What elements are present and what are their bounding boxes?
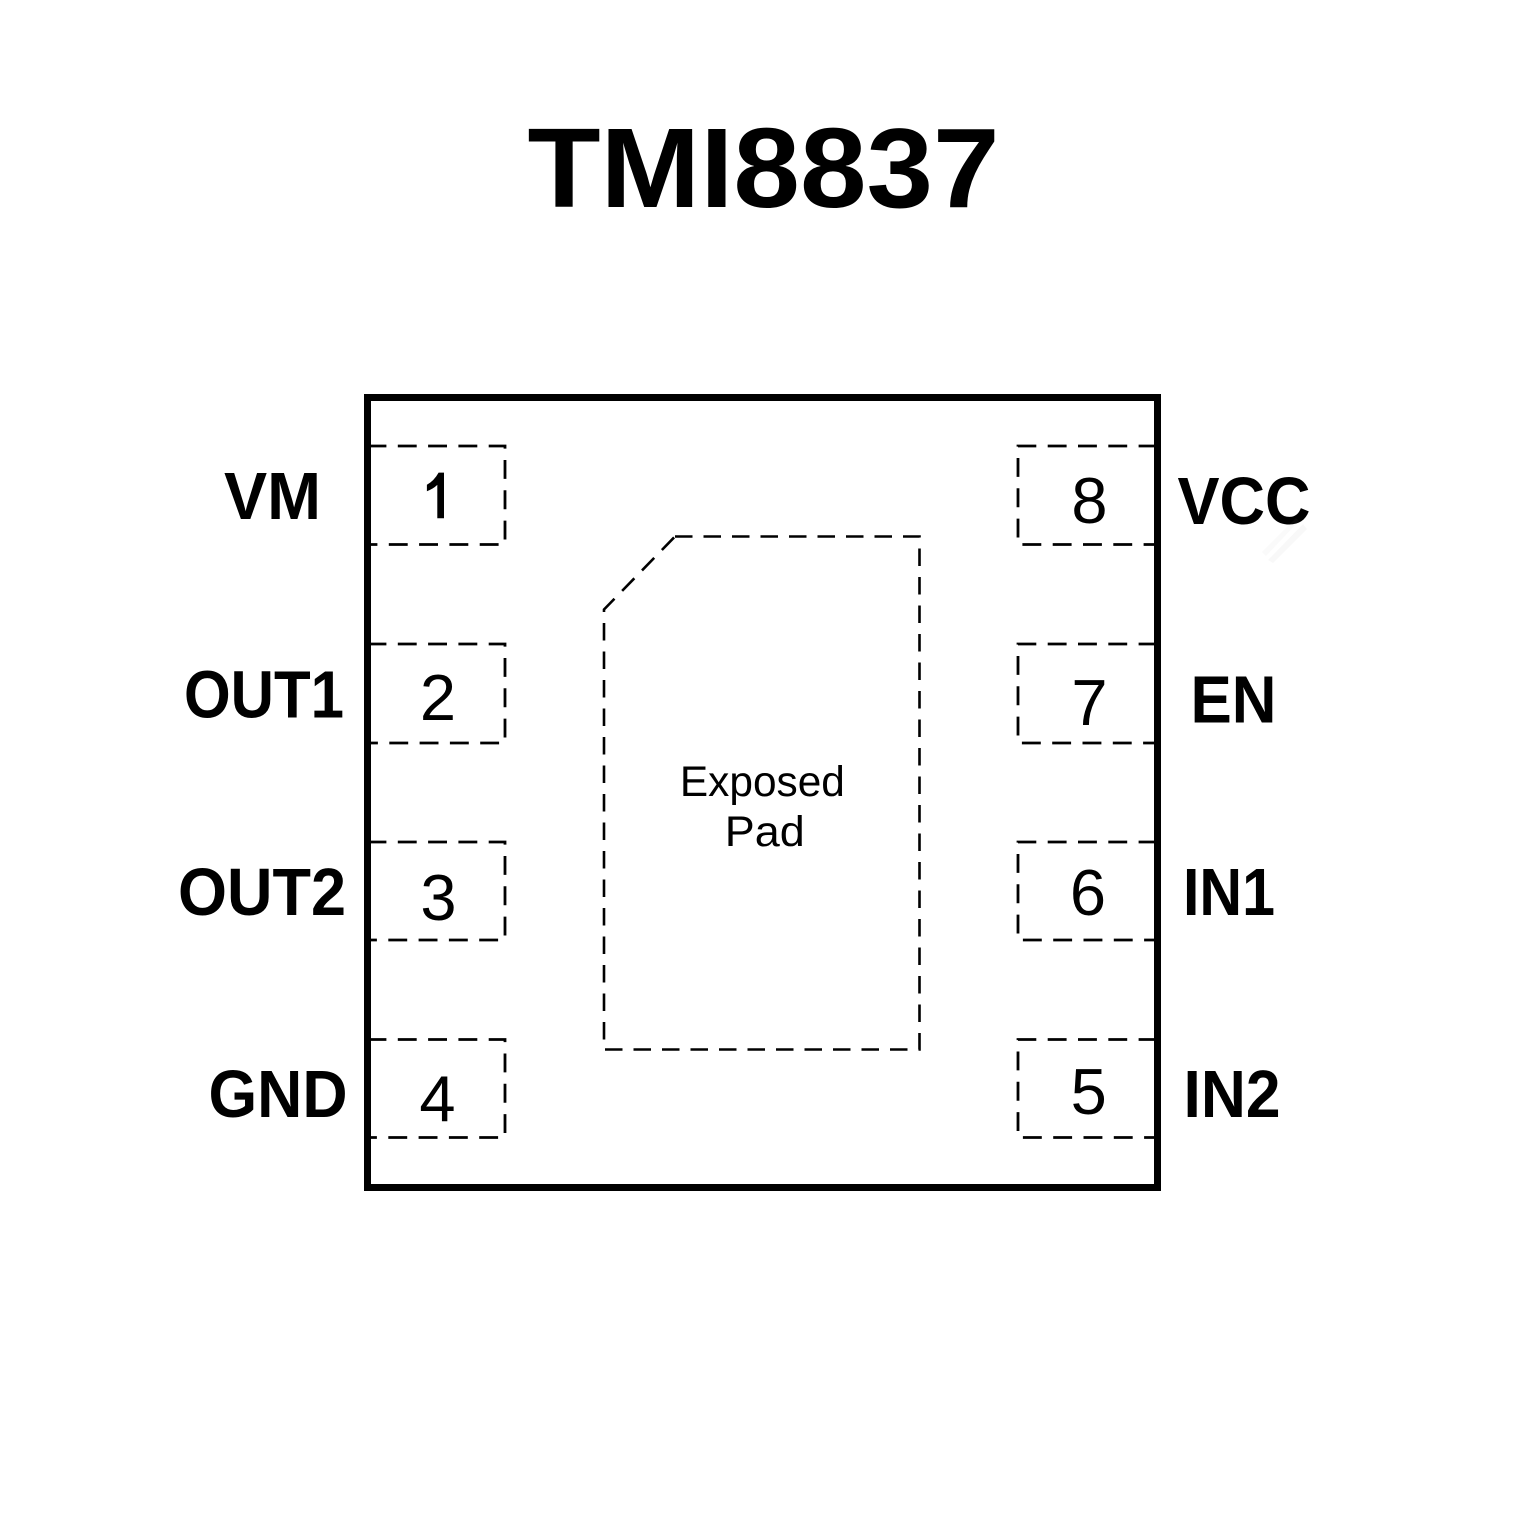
svg-text:GND: GND (209, 1057, 348, 1132)
svg-text:4: 4 (419, 1062, 455, 1135)
svg-text:OUT1: OUT1 (184, 658, 344, 733)
svg-text:Pad: Pad (725, 808, 805, 856)
svg-text:3: 3 (420, 861, 456, 934)
svg-text:5: 5 (1071, 1055, 1107, 1128)
svg-text:VM: VM (224, 459, 321, 534)
svg-text:TMI8837: TMI8837 (528, 105, 1000, 231)
svg-text:EN: EN (1191, 662, 1277, 737)
svg-text:8: 8 (1071, 464, 1107, 537)
svg-text:OUT2: OUT2 (178, 855, 346, 930)
svg-text:6: 6 (1070, 856, 1106, 929)
svg-text:7: 7 (1071, 666, 1107, 739)
svg-text:IN2: IN2 (1184, 1057, 1281, 1132)
svg-text:2: 2 (420, 661, 456, 734)
svg-text:IN1: IN1 (1183, 855, 1275, 930)
svg-text:Exposed: Exposed (680, 758, 845, 806)
